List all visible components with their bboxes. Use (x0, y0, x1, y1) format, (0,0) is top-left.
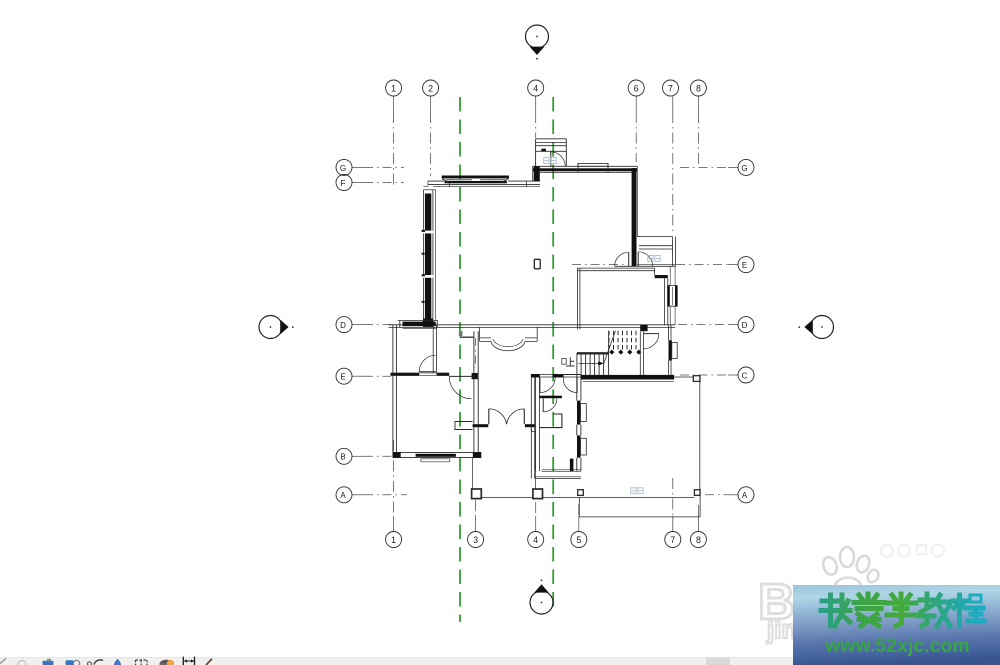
svg-text:6: 6 (634, 84, 639, 94)
svg-text:1: 1 (391, 84, 396, 94)
svg-text:B: B (340, 453, 345, 462)
svg-text:F: F (341, 179, 346, 188)
svg-text:2: 2 (428, 84, 433, 94)
svg-text:A: A (340, 491, 346, 500)
svg-text:8: 8 (696, 84, 701, 94)
svg-text:4: 4 (533, 535, 538, 545)
svg-text:4: 4 (533, 84, 538, 94)
svg-text:www.52xjc.com: www.52xjc.com (824, 635, 970, 657)
svg-text:1: 1 (391, 535, 396, 545)
svg-text:jin: jin (766, 614, 797, 644)
svg-text:D: D (340, 321, 346, 330)
svg-text:3: 3 (473, 535, 478, 545)
svg-text:A: A (742, 491, 748, 500)
svg-text:7: 7 (670, 535, 675, 545)
svg-text:C: C (742, 371, 748, 380)
svg-text:8: 8 (696, 535, 701, 545)
svg-text:7: 7 (668, 84, 673, 94)
svg-text:5: 5 (576, 535, 581, 545)
svg-text:G: G (340, 164, 346, 173)
svg-text:E: E (742, 261, 747, 270)
svg-text:D: D (742, 321, 748, 330)
svg-text:E: E (340, 373, 345, 382)
svg-text:G: G (741, 164, 747, 173)
